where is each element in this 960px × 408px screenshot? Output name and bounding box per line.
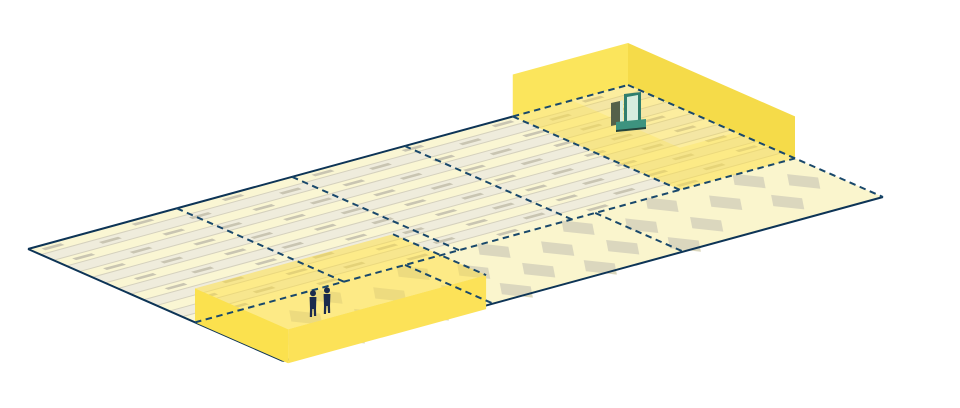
- worker-torso: [324, 294, 331, 306]
- forklift-mast-inner: [627, 95, 638, 124]
- worker-torso: [310, 297, 317, 309]
- worker-leg: [324, 305, 327, 314]
- forklift-mast-gap: [620, 100, 623, 124]
- warehouse-iso-scene: [0, 0, 960, 408]
- isometric-floor-diagram: [0, 0, 960, 408]
- worker-leg: [310, 308, 313, 317]
- worker-leg: [314, 308, 317, 316]
- worker-head: [324, 287, 330, 293]
- worker-head: [310, 290, 316, 296]
- worker-leg: [328, 305, 331, 313]
